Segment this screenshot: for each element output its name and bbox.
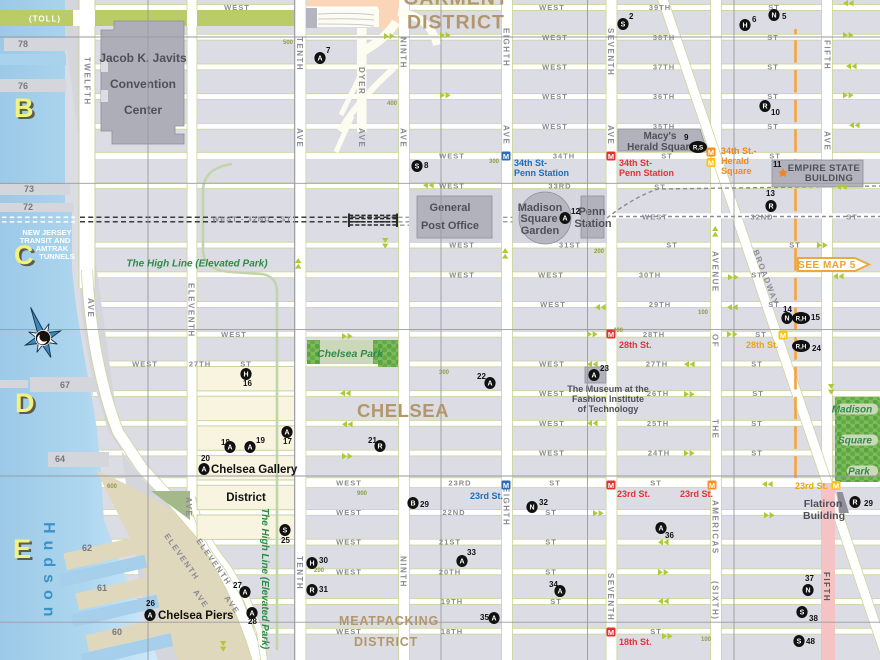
svg-text:M: M [708,158,714,167]
svg-text:23rd St.: 23rd St. [680,489,713,499]
svg-text:WEST - 32ND - ST: WEST - 32ND - ST [212,214,292,223]
svg-text:Chelsea Gallery: Chelsea Gallery [211,464,298,476]
svg-text:AVE: AVE [295,128,304,148]
svg-text:THE: THE [711,419,720,440]
svg-text:The Museum at the: The Museum at the [567,384,649,394]
svg-text:400: 400 [613,328,624,334]
svg-text:ST: ST [545,567,557,576]
svg-text:22: 22 [477,372,486,381]
svg-text:M: M [608,481,614,490]
svg-text:R: R [377,443,382,450]
svg-text:24: 24 [812,344,821,353]
svg-text:ST: ST [550,597,562,606]
svg-text:(SIXTH): (SIXTH) [711,581,720,620]
svg-text:AMERICAS: AMERICAS [711,500,720,555]
svg-text:WEST: WEST [542,122,568,131]
svg-text:M: M [780,331,786,340]
svg-text:A: A [459,558,464,565]
svg-text:Penn Station: Penn Station [514,168,569,178]
svg-text:N: N [805,587,810,594]
svg-text:A: A [247,444,252,451]
svg-text:200: 200 [594,249,605,255]
svg-text:H: H [243,371,248,378]
svg-text:16: 16 [243,379,252,388]
svg-text:ST: ST [755,330,767,339]
svg-text:100: 100 [698,310,709,316]
svg-text:NINTH: NINTH [399,556,408,588]
svg-text:62: 62 [82,543,92,553]
svg-text:ST: ST [767,63,779,72]
svg-text:20TH: 20TH [439,567,461,576]
svg-text:B: B [14,93,34,123]
svg-text:30TH: 30TH [639,270,661,279]
svg-text:A: A [487,380,492,387]
svg-text:26TH: 26TH [647,389,669,398]
svg-text:25: 25 [281,536,290,545]
svg-text:Convention: Convention [110,77,176,91]
svg-text:35TH: 35TH [653,122,675,131]
svg-text:D: D [15,388,35,418]
svg-text:WEST: WEST [542,92,568,101]
svg-text:WEST: WEST [336,478,362,487]
svg-text:17: 17 [283,437,292,446]
svg-text:19: 19 [256,436,265,445]
svg-text:AVE: AVE [399,128,408,148]
svg-text:600: 600 [107,484,118,490]
svg-text:Garden: Garden [521,225,560,237]
svg-text:ST: ST [789,241,801,250]
svg-text:N: N [529,504,534,511]
svg-text:5: 5 [782,12,787,21]
svg-text:Macy's: Macy's [644,131,677,142]
svg-text:33: 33 [467,548,476,557]
svg-text:A: A [147,612,152,619]
svg-text:Station: Station [574,218,612,230]
svg-text:36: 36 [665,531,674,540]
svg-text:500: 500 [283,40,294,46]
svg-text:34th St.-: 34th St.- [721,146,757,156]
svg-text:OF: OF [711,334,720,348]
svg-text:34: 34 [549,580,558,589]
svg-text:15: 15 [811,313,820,322]
svg-text:12: 12 [571,207,580,216]
svg-text:32ND: 32ND [750,213,773,222]
svg-text:73: 73 [24,184,34,194]
svg-text:Building: Building [803,510,845,522]
svg-text:A: A [317,55,322,62]
svg-text:DISTRICT: DISTRICT [407,12,505,34]
svg-text:ST: ST [661,152,673,161]
svg-text:WEST: WEST [538,270,564,279]
svg-text:R: R [762,103,767,110]
svg-text:8: 8 [424,161,429,170]
svg-text:ST: ST [654,183,666,192]
svg-text:WEST: WEST [539,449,565,458]
svg-text:Penn Station: Penn Station [619,168,674,178]
svg-text:NINTH: NINTH [399,37,408,69]
svg-text:Chelsea Piers: Chelsea Piers [158,610,233,622]
svg-text:SEVENTH: SEVENTH [606,28,615,76]
svg-text:32: 32 [539,498,548,507]
svg-text:A: A [658,525,663,532]
svg-text:WEST: WEST [336,538,362,547]
svg-text:24TH: 24TH [648,449,670,458]
svg-text:18TH: 18TH [441,627,463,636]
svg-text:37: 37 [805,574,814,583]
svg-text:Penn: Penn [579,206,606,218]
svg-text:BUILDING: BUILDING [805,173,853,184]
svg-text:A: A [242,589,247,596]
svg-text:34th St-: 34th St- [619,158,652,168]
svg-text:A: A [591,372,596,379]
svg-text:WEST: WEST [539,419,565,428]
svg-text:21: 21 [368,436,377,445]
svg-text:38TH: 38TH [653,33,675,42]
svg-text:WEST: WEST [336,508,362,517]
svg-text:GARMENT: GARMENT [403,0,509,10]
svg-text:DISTRICT: DISTRICT [354,635,418,649]
svg-text:TWELFTH: TWELFTH [83,57,92,106]
svg-text:35: 35 [480,613,489,622]
svg-text:A: A [201,466,206,473]
svg-text:34th St-: 34th St- [514,158,547,168]
svg-text:Chelsea Park: Chelsea Park [317,348,384,360]
svg-text:WEST: WEST [542,63,568,72]
svg-text:AVE: AVE [86,298,95,318]
svg-text:H: H [742,22,747,29]
svg-text:14: 14 [783,305,792,314]
svg-text:Center: Center [124,103,162,117]
svg-text:WEST: WEST [540,300,566,309]
svg-text:ST: ST [751,360,763,369]
svg-text:23: 23 [600,364,609,373]
svg-text:WEST: WEST [221,330,247,339]
svg-text:400: 400 [387,101,398,107]
svg-text:ST: ST [666,241,678,250]
svg-text:23RD: 23RD [448,478,471,487]
svg-text:ST: ST [545,508,557,517]
svg-text:ST: ST [545,538,557,547]
svg-text:M: M [503,152,509,161]
svg-text:WEST: WEST [336,567,362,576]
svg-text:S: S [621,21,626,28]
svg-text:6: 6 [752,15,757,24]
svg-text:A: A [491,615,496,622]
svg-text:The High Line (Elevated Park): The High Line (Elevated Park) [126,259,268,270]
svg-text:300: 300 [489,159,500,165]
svg-text:29TH: 29TH [649,300,671,309]
svg-text:E: E [13,534,31,564]
svg-text:AVE: AVE [823,131,832,151]
svg-text:S: S [800,609,805,616]
svg-text:ST: ST [767,122,779,131]
svg-text:31: 31 [319,585,328,594]
svg-text:29: 29 [420,500,429,509]
svg-text:SEVENTH: SEVENTH [606,573,615,621]
svg-text:29: 29 [864,499,873,508]
svg-text:Herald: Herald [721,156,749,166]
svg-text:38: 38 [809,614,818,623]
svg-text:23rd St.: 23rd St. [617,489,650,499]
svg-text:R,H: R,H [796,343,807,350]
svg-text:ST: ST [751,419,763,428]
svg-text:39TH: 39TH [649,3,671,12]
svg-text:21ST: 21ST [439,538,461,547]
svg-text:18th St.: 18th St. [619,637,652,647]
svg-text:200: 200 [314,568,325,574]
svg-text:R: R [768,203,773,210]
svg-text:10: 10 [771,108,780,117]
svg-text:23rd St.: 23rd St. [795,481,828,491]
svg-text:19TH: 19TH [441,597,463,606]
svg-text:36TH: 36TH [653,92,675,101]
svg-text:22ND: 22ND [442,508,465,517]
svg-text:28th St.: 28th St. [619,340,652,350]
svg-text:TENTH: TENTH [295,37,304,71]
svg-text:AVE: AVE [502,125,511,145]
svg-text:9: 9 [684,133,689,142]
svg-text:27: 27 [233,581,242,590]
svg-text:AVENUE: AVENUE [711,251,720,293]
svg-text:CHELSEA: CHELSEA [357,400,449,421]
svg-text:34TH: 34TH [553,152,575,161]
svg-text:General: General [430,202,471,214]
svg-text:31ST: 31ST [559,241,581,250]
svg-text:AVE: AVE [357,128,366,148]
svg-text:37TH: 37TH [653,63,675,72]
svg-text:EIGHTH: EIGHTH [502,28,511,67]
svg-text:60: 60 [112,627,122,637]
svg-text:ST: ST [240,360,252,369]
svg-text:ST: ST [650,627,662,636]
svg-text:Post Office: Post Office [421,220,479,232]
svg-text:M: M [608,628,614,637]
svg-text:48: 48 [806,637,815,646]
svg-text:26: 26 [146,599,155,608]
svg-text:ST: ST [752,389,764,398]
svg-text:M: M [608,152,614,161]
svg-text:(TOLL): (TOLL) [29,15,61,24]
svg-text:ST: ST [846,213,858,222]
svg-text:ST: ST [769,152,781,161]
svg-text:78: 78 [18,39,28,49]
svg-text:The High Line (Elevated Park): The High Line (Elevated Park) [259,508,270,650]
svg-text:A: A [284,429,289,436]
svg-text:N: N [771,12,776,19]
svg-text:R,H: R,H [796,315,807,322]
svg-text:ST: ST [650,478,662,487]
svg-text:76: 76 [18,81,28,91]
svg-text:Square: Square [838,436,872,447]
svg-text:28TH: 28TH [643,330,665,339]
svg-text:25TH: 25TH [647,419,669,428]
svg-text:WEST: WEST [542,33,568,42]
svg-text:District: District [226,492,266,504]
svg-text:ST: ST [751,449,763,458]
svg-text:64: 64 [55,454,65,464]
svg-text:MEATPACKING: MEATPACKING [339,614,439,628]
svg-text:WEST: WEST [449,270,475,279]
svg-text:WEST: WEST [642,213,668,222]
svg-text:FIFTH: FIFTH [822,572,831,602]
svg-text:S: S [283,527,288,534]
svg-text:2: 2 [629,12,634,21]
svg-text:R: R [309,587,314,594]
svg-text:13: 13 [766,189,775,198]
svg-text:ST: ST [767,92,779,101]
svg-text:SEE MAP 5: SEE MAP 5 [798,260,856,271]
svg-text:WEST: WEST [539,3,565,12]
svg-text:Square: Square [721,166,752,176]
svg-text:Jacob K. Javits: Jacob K. Javits [99,51,187,65]
svg-text:DYER: DYER [357,67,366,95]
svg-text:TUNNELS: TUNNELS [39,252,74,261]
svg-text:20: 20 [201,454,210,463]
svg-text:33RD: 33RD [548,181,571,190]
svg-text:61: 61 [97,583,107,593]
svg-text:27TH: 27TH [646,360,668,369]
svg-text:M: M [503,481,509,490]
svg-text:N: N [784,315,789,322]
svg-text:27TH: 27TH [189,360,211,369]
svg-text:28: 28 [248,617,257,626]
svg-text:TENTH: TENTH [295,556,304,590]
svg-text:AVE: AVE [184,497,193,517]
svg-text:FIFTH: FIFTH [823,40,832,70]
svg-text:A: A [557,588,562,595]
svg-text:7: 7 [326,46,331,55]
svg-text:A: A [562,215,567,222]
svg-text:18: 18 [221,438,230,447]
svg-text:900: 900 [357,491,368,497]
svg-text:ST: ST [767,33,779,42]
svg-text:H: H [309,560,314,567]
svg-text:Madison: Madison [832,405,873,416]
svg-text:30: 30 [319,556,328,565]
svg-text:WEST: WEST [439,152,465,161]
svg-text:M: M [833,481,839,490]
svg-text:M: M [708,148,714,157]
svg-text:ST: ST [549,478,561,487]
svg-text:WEST: WEST [132,360,158,369]
svg-text:28th St.: 28th St. [746,340,779,350]
svg-text:Flatiron: Flatiron [804,498,843,510]
svg-text:Hudson: Hudson [40,522,57,624]
svg-text:S: S [797,638,802,645]
svg-text:72: 72 [23,202,33,212]
svg-text:R: R [852,499,857,506]
svg-text:100: 100 [701,637,712,643]
svg-text:WEST: WEST [439,181,465,190]
svg-text:Square: Square [520,213,557,225]
svg-text:67: 67 [60,380,70,390]
svg-text:300: 300 [439,370,450,376]
svg-text:WEST: WEST [539,389,565,398]
svg-text:of Technology: of Technology [578,404,639,414]
svg-text:WEST: WEST [449,241,475,250]
svg-text:Fashion Institute: Fashion Institute [572,394,644,404]
svg-text:11: 11 [773,160,782,169]
svg-text:R,S: R,S [693,144,703,151]
svg-text:WEST: WEST [224,3,250,12]
svg-text:B: B [410,500,415,507]
svg-text:23rd St.: 23rd St. [470,491,503,501]
svg-text:AVE: AVE [606,125,615,145]
svg-text:ELEVENTH: ELEVENTH [187,283,196,338]
svg-text:S: S [415,163,420,170]
svg-text:WEST: WEST [539,360,565,369]
